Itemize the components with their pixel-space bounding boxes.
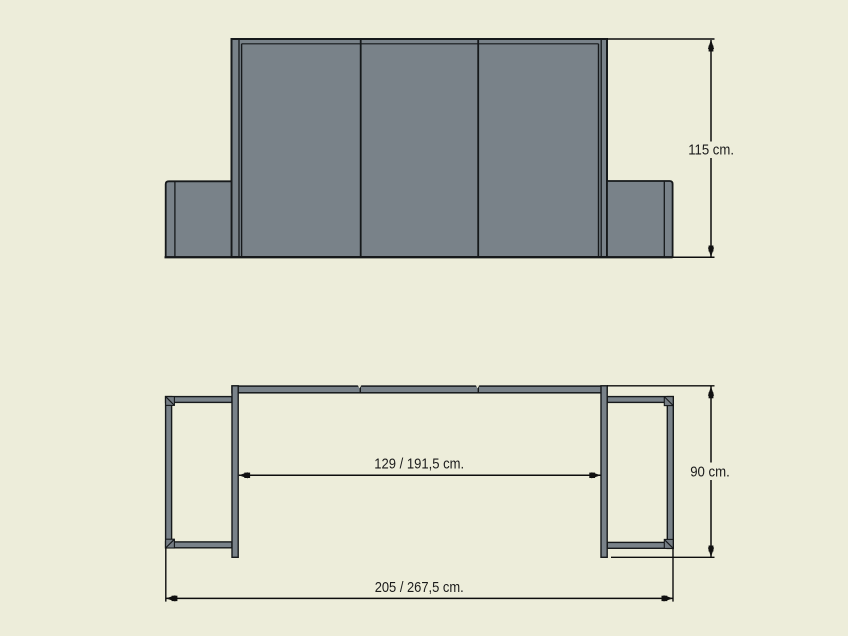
svg-text:115 cm.: 115 cm. [688, 141, 734, 158]
svg-text:90 cm.: 90 cm. [690, 463, 730, 480]
svg-text:205 / 267,5 cm.: 205 / 267,5 cm. [375, 579, 464, 596]
svg-text:129 / 191,5 cm.: 129 / 191,5 cm. [374, 456, 464, 473]
